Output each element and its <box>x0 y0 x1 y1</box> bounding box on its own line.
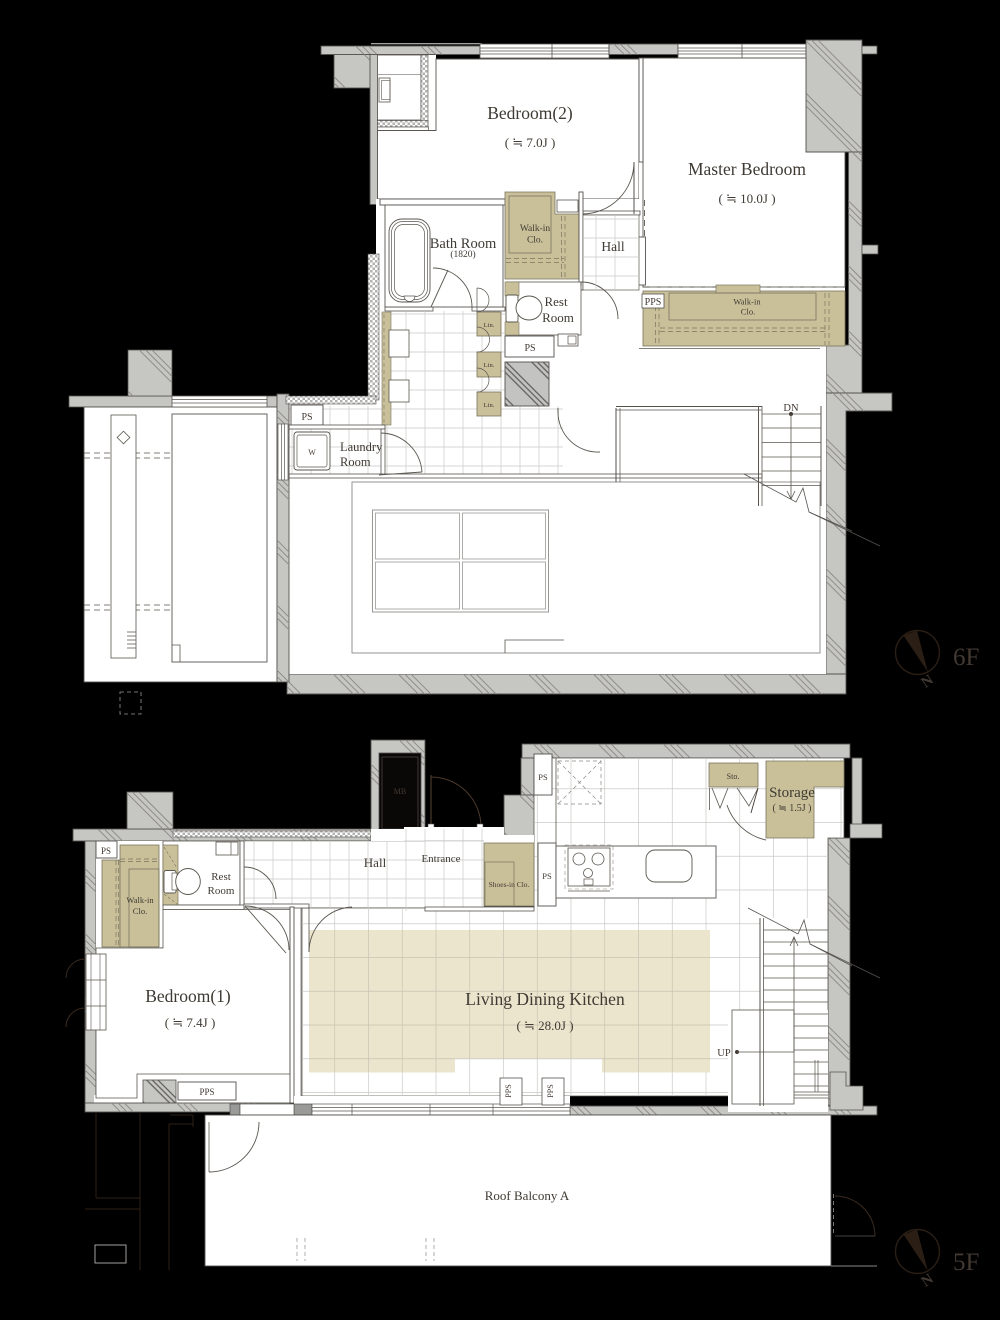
svg-text:DN: DN <box>783 403 799 414</box>
svg-text:( ≒ 7.0J ): ( ≒ 7.0J ) <box>505 135 556 150</box>
svg-text:Clo.: Clo. <box>741 307 755 317</box>
svg-text:Lin.: Lin. <box>484 402 495 409</box>
svg-text:Lin.: Lin. <box>484 362 495 369</box>
svg-text:( ≒ 28.0J ): ( ≒ 28.0J ) <box>516 1018 573 1033</box>
svg-text:( ≒ 1.5J ): ( ≒ 1.5J ) <box>773 803 812 814</box>
svg-text:PS: PS <box>542 871 552 881</box>
svg-text:Clo.: Clo. <box>527 236 543 246</box>
svg-text:( ≒ 7.4J ): ( ≒ 7.4J ) <box>165 1015 216 1030</box>
svg-text:5F: 5F <box>953 1249 979 1276</box>
svg-text:Clo.: Clo. <box>133 906 147 916</box>
svg-text:Room: Room <box>542 310 574 325</box>
svg-text:Shoes-in Clo.: Shoes-in Clo. <box>489 880 530 889</box>
svg-text:MB: MB <box>394 787 406 796</box>
svg-text:PS: PS <box>101 846 111 856</box>
svg-text:6F: 6F <box>953 644 979 671</box>
svg-text:Roof Balcony A: Roof Balcony A <box>485 1188 570 1203</box>
svg-text:Bedroom(1): Bedroom(1) <box>145 986 231 1006</box>
svg-text:Hall: Hall <box>601 239 624 254</box>
svg-text:Rest: Rest <box>544 294 568 309</box>
svg-text:( ≒ 10.0J ): ( ≒ 10.0J ) <box>718 191 775 206</box>
svg-text:(1820): (1820) <box>450 249 475 260</box>
svg-text:Room: Room <box>340 455 371 469</box>
svg-text:Walk-in: Walk-in <box>520 224 551 234</box>
svg-text:PPS: PPS <box>199 1087 214 1097</box>
svg-text:Walk-in: Walk-in <box>733 297 761 307</box>
svg-text:Room: Room <box>208 885 235 897</box>
svg-text:Rest: Rest <box>211 871 231 883</box>
svg-text:Entrance: Entrance <box>421 853 460 865</box>
svg-text:Storage: Storage <box>769 785 815 801</box>
svg-text:PS: PS <box>301 412 312 423</box>
svg-text:Hall: Hall <box>364 855 387 870</box>
svg-text:W: W <box>308 448 316 457</box>
svg-text:PS: PS <box>538 772 548 782</box>
svg-text:PPS: PPS <box>504 1084 513 1097</box>
svg-text:Sto.: Sto. <box>727 772 740 781</box>
svg-text:Lin.: Lin. <box>484 322 495 329</box>
svg-text:UP: UP <box>717 1048 731 1059</box>
svg-text:Living Dining Kitchen: Living Dining Kitchen <box>465 989 625 1009</box>
svg-text:Master Bedroom: Master Bedroom <box>688 159 806 179</box>
svg-text:Bedroom(2): Bedroom(2) <box>487 103 573 123</box>
svg-text:Laundry: Laundry <box>340 440 383 454</box>
svg-text:PPS: PPS <box>645 297 662 308</box>
svg-text:Walk-in: Walk-in <box>126 895 154 905</box>
svg-text:PS: PS <box>524 343 535 354</box>
svg-text:PPS: PPS <box>546 1084 555 1097</box>
